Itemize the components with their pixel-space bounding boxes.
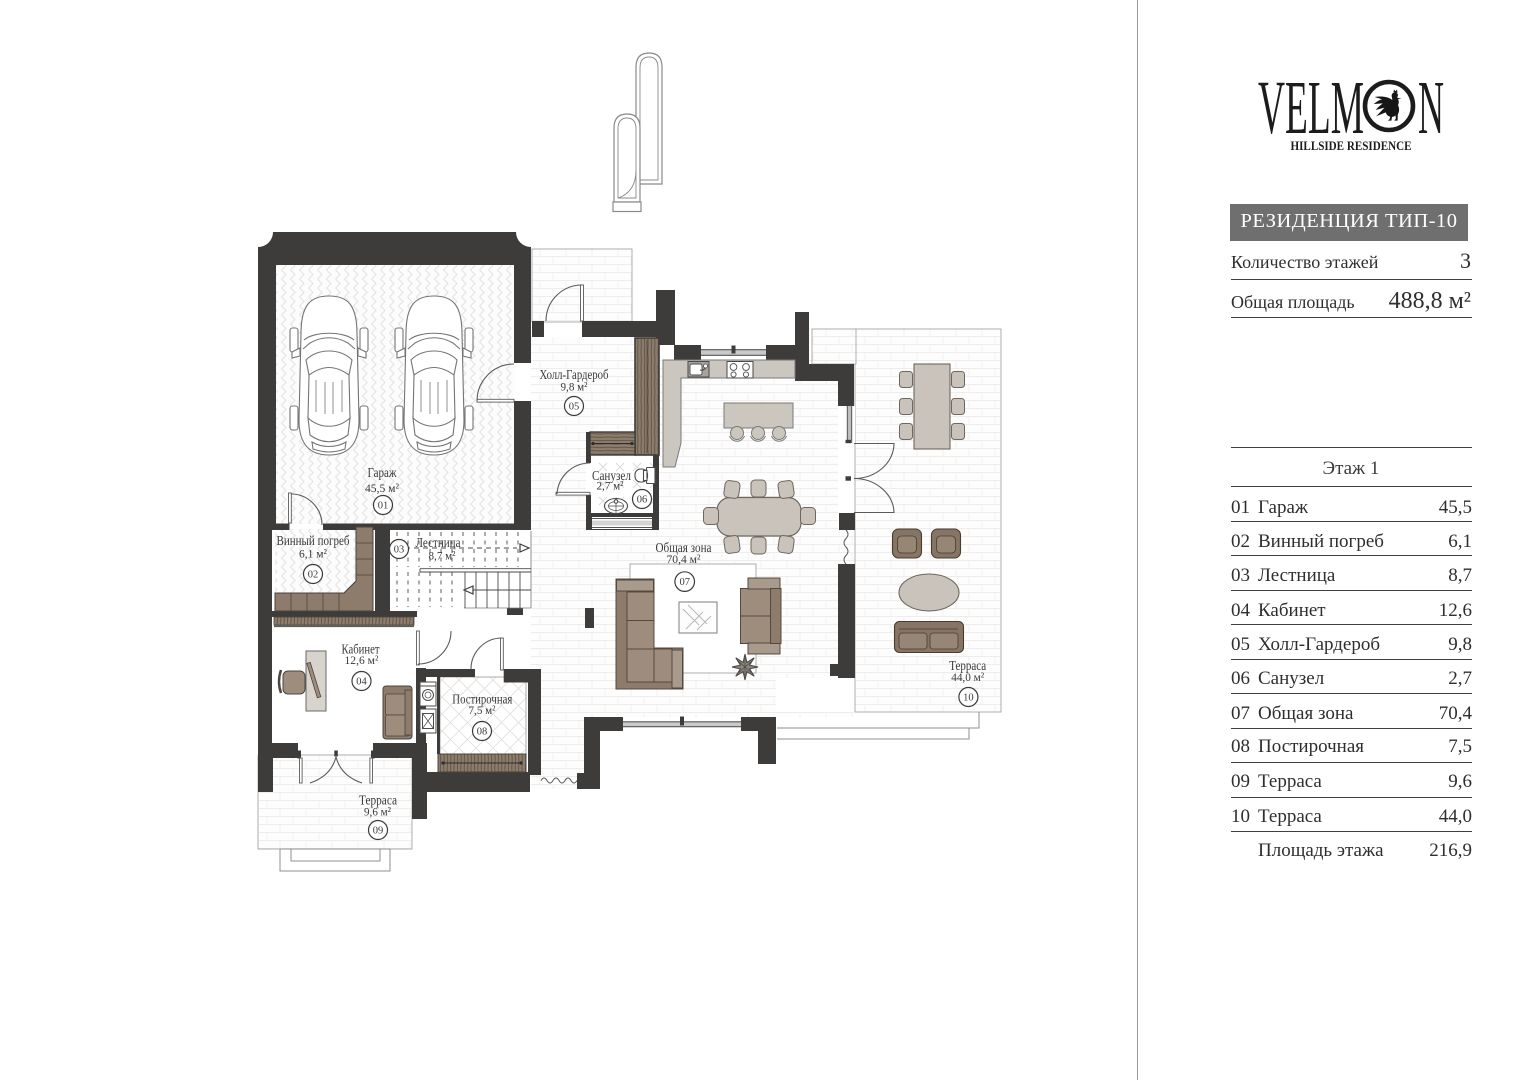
svg-text:10: 10 (963, 693, 974, 704)
svg-text:70,4 м²: 70,4 м² (667, 552, 701, 566)
svg-text:04: 04 (356, 677, 367, 688)
svg-text:02: 02 (308, 570, 319, 581)
svg-text:07: 07 (679, 577, 690, 588)
svg-text:N: N (1418, 66, 1444, 150)
svg-text:12,6 м²: 12,6 м² (345, 653, 379, 667)
svg-text:9,6 м²: 9,6 м² (364, 805, 391, 819)
svg-text:Гараж: Гараж (368, 465, 398, 480)
svg-text:6,1 м²: 6,1 м² (299, 547, 327, 561)
svg-text:01: 01 (378, 501, 389, 512)
svg-text:08: 08 (477, 727, 488, 738)
svg-text:VELM: VELM (1258, 66, 1364, 150)
svg-text:06: 06 (637, 495, 648, 506)
svg-text:45,5 м²: 45,5 м² (365, 481, 399, 495)
svg-text:09: 09 (373, 826, 384, 837)
svg-text:03: 03 (394, 545, 405, 556)
svg-text:9,8 м²: 9,8 м² (561, 380, 588, 394)
svg-text:05: 05 (569, 402, 580, 413)
svg-text:44,0 м²: 44,0 м² (951, 670, 984, 684)
svg-text:2,7 м²: 2,7 м² (597, 479, 624, 493)
svg-text:7,5 м²: 7,5 м² (469, 703, 496, 717)
svg-text:HILLSIDE RESIDENCE: HILLSIDE RESIDENCE (1291, 139, 1412, 153)
svg-text:8,7 м²: 8,7 м² (429, 549, 456, 563)
